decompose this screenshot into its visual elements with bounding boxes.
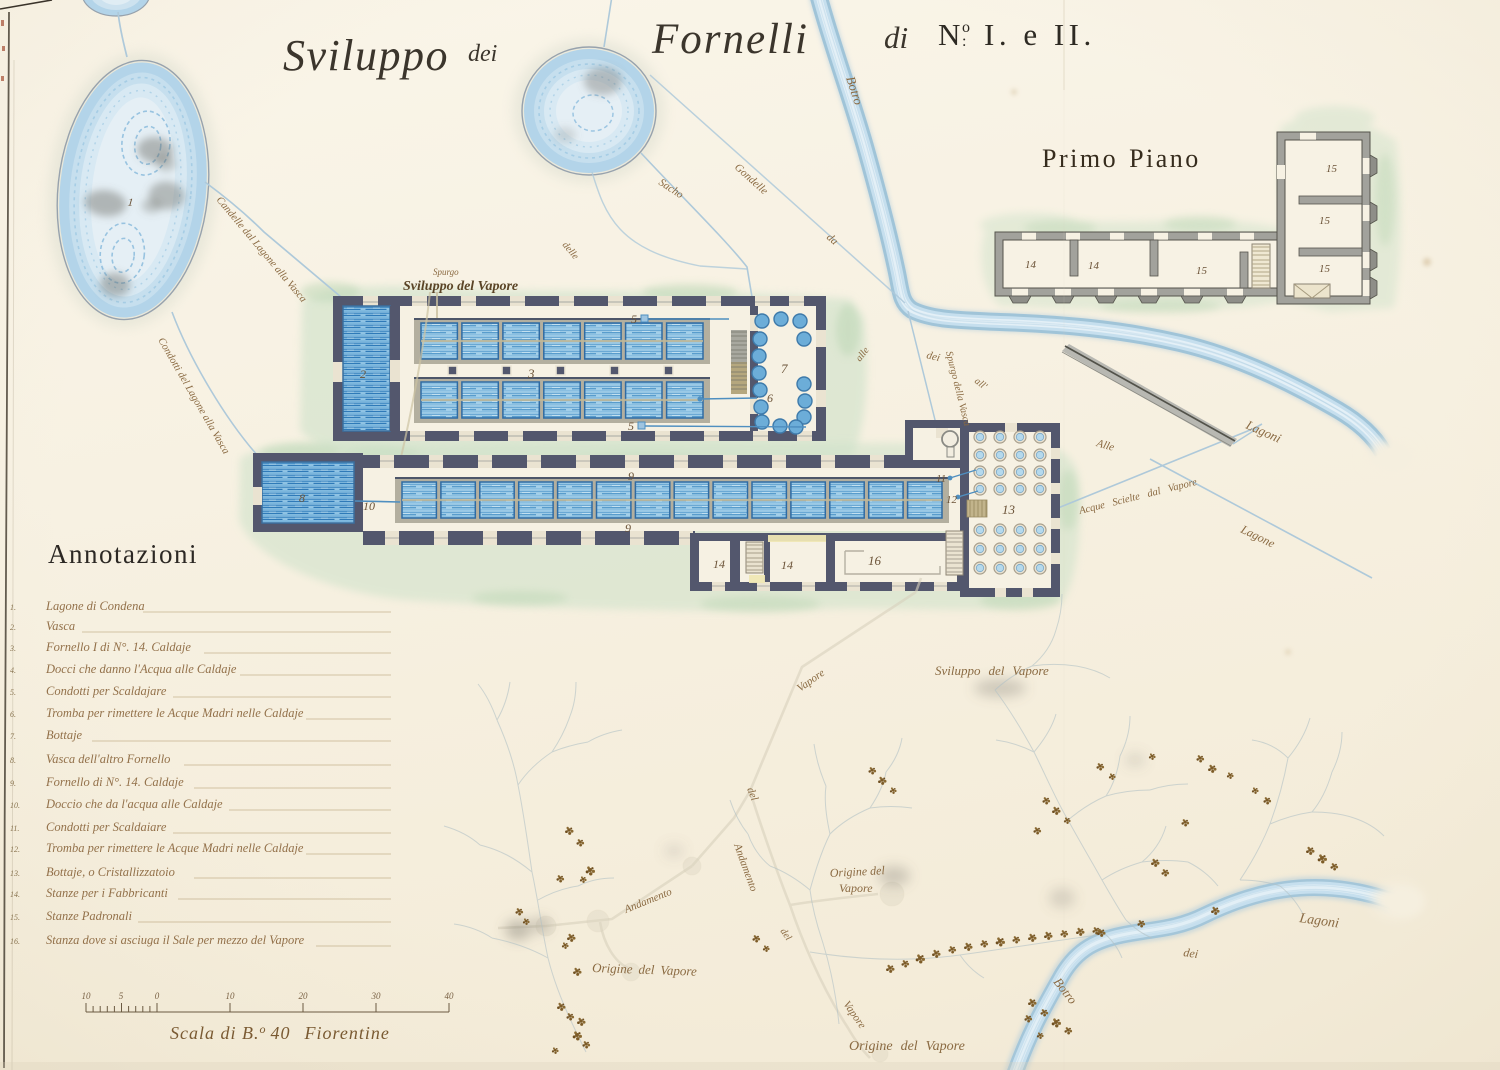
svg-text:7: 7: [781, 361, 788, 376]
svg-text:2: 2: [360, 367, 366, 381]
svg-text:Fornello I di N°. 14. Caldaje: Fornello I di N°. 14. Caldaje: [45, 640, 191, 654]
svg-text:Stanza dove si asciuga il Sale: Stanza dove si asciuga il Sale per mezzo…: [46, 933, 305, 947]
svg-text:10: 10: [226, 991, 236, 1001]
svg-text:9: 9: [628, 469, 634, 483]
svg-text:11.: 11.: [10, 824, 19, 833]
svg-text:6: 6: [767, 391, 773, 405]
svg-text:8: 8: [299, 491, 305, 505]
svg-text:14.: 14.: [10, 890, 20, 899]
svg-text:Sviluppo del Vapore: Sviluppo del Vapore: [403, 279, 518, 294]
svg-text:15.: 15.: [10, 913, 20, 922]
svg-text:di: di: [884, 20, 908, 55]
svg-text:Spurgo: Spurgo: [433, 267, 459, 277]
svg-text:15: 15: [1326, 163, 1338, 175]
svg-text:Scala di B.o40Fiorentine: Scala di B.o40Fiorentine: [170, 1022, 390, 1043]
svg-text:10: 10: [82, 991, 92, 1001]
svg-text:N: N: [938, 17, 963, 52]
svg-text:15: 15: [1319, 215, 1331, 227]
svg-text:11: 11: [936, 473, 946, 485]
svg-text:12.: 12.: [10, 845, 20, 854]
svg-text:Stanze Padronali: Stanze Padronali: [46, 909, 133, 923]
svg-text:40: 40: [445, 991, 455, 1001]
svg-text:Fornello di N°. 14. Caldaje: Fornello di N°. 14. Caldaje: [45, 775, 184, 789]
svg-text:16.: 16.: [10, 937, 20, 946]
svg-text:5: 5: [631, 312, 637, 326]
svg-text:13.: 13.: [10, 869, 20, 878]
svg-text:9: 9: [625, 521, 631, 535]
svg-text:10.: 10.: [10, 801, 20, 810]
svg-text:12: 12: [946, 494, 958, 506]
svg-text:Vapore: Vapore: [839, 881, 873, 895]
svg-text:Sviluppo: Sviluppo: [283, 31, 449, 80]
svg-text:dei: dei: [1183, 945, 1199, 961]
svg-text:Condotti per Scaldajare: Condotti per Scaldajare: [46, 684, 167, 698]
svg-text:Tromba per rimettere le Acque: Tromba per rimettere le Acque Madri nell…: [46, 706, 304, 720]
svg-text:16: 16: [868, 553, 882, 568]
svg-text:14: 14: [1025, 259, 1037, 271]
svg-text:30: 30: [371, 991, 382, 1001]
svg-text:5: 5: [628, 419, 634, 433]
svg-text:Origine del: Origine del: [829, 863, 885, 880]
svg-text:0: 0: [155, 991, 160, 1001]
svg-text:10: 10: [363, 499, 375, 513]
svg-text:I. e II.: I. e II.: [984, 17, 1096, 52]
svg-text:20: 20: [299, 991, 309, 1001]
svg-text:Vasca: Vasca: [46, 619, 75, 633]
svg-text:Bottaje, o Cristallizzatoio: Bottaje, o Cristallizzatoio: [46, 865, 175, 879]
svg-text:Condotti per Scaldaiare: Condotti per Scaldaiare: [46, 820, 167, 834]
svg-text:Stanze per i Fabbricanti: Stanze per i Fabbricanti: [46, 886, 168, 900]
svg-text:Fornelli: Fornelli: [651, 16, 809, 63]
svg-text:dei: dei: [468, 41, 497, 67]
svg-text:14: 14: [781, 558, 793, 572]
svg-text:5: 5: [119, 991, 124, 1001]
svg-text:OriginedelVapore: OriginedelVapore: [849, 1039, 965, 1054]
svg-text:15: 15: [1196, 265, 1208, 277]
svg-text:Bottaje: Bottaje: [46, 728, 83, 742]
svg-text:SviluppodelVapore: SviluppodelVapore: [935, 663, 1049, 678]
svg-text:13: 13: [1002, 502, 1016, 517]
svg-text:Lagone di Condena: Lagone di Condena: [45, 599, 145, 613]
svg-text:Tromba per rimettere le Acque: Tromba per rimettere le Acque Madri nell…: [46, 841, 304, 855]
svg-text:14: 14: [1088, 260, 1100, 272]
svg-text:Annotazioni: Annotazioni: [48, 539, 198, 569]
svg-text:3: 3: [527, 366, 535, 381]
svg-text:Vasca dell'altro Fornello: Vasca dell'altro Fornello: [46, 752, 170, 766]
svg-text:Docci che danno l'Acqua alle C: Docci che danno l'Acqua alle Caldaje: [45, 662, 237, 676]
svg-text:14: 14: [713, 557, 725, 571]
svg-text:Doccio che da l'acqua alle Cal: Doccio che da l'acqua alle Caldaje: [45, 797, 223, 811]
svg-text::: :: [962, 33, 966, 50]
svg-text:15: 15: [1319, 263, 1331, 275]
